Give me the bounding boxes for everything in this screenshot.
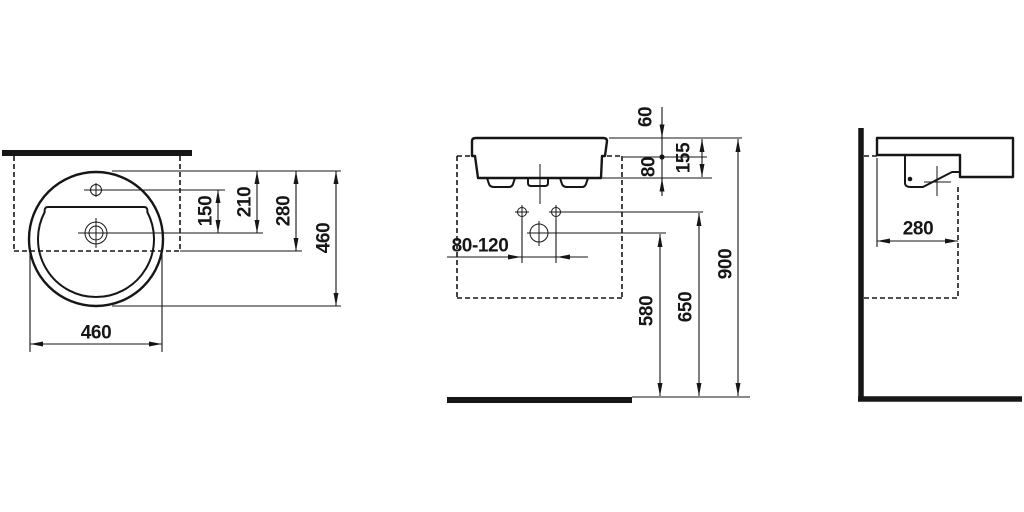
dim-label-900: 900 <box>716 249 737 280</box>
front-view: 60 80 155 580 650 900 80-120 <box>447 107 750 400</box>
drain-centerline-side <box>924 166 951 196</box>
washbasin-dimension-drawing: 150 210 280 460 460 <box>0 0 1024 512</box>
dim-label-80: 80 <box>639 157 660 177</box>
floor-line-front <box>447 397 750 400</box>
drain-dot-side <box>908 177 913 182</box>
dim-label-155: 155 <box>674 142 695 173</box>
leader-lines <box>104 171 341 306</box>
dim-label-580: 580 <box>637 296 658 327</box>
dim-label-650: 650 <box>676 292 697 323</box>
dim-label-280-top: 280 <box>274 196 295 227</box>
dim-label-210: 210 <box>235 187 256 218</box>
drain-front <box>527 221 551 246</box>
dim-label-80-120: 80-120 <box>452 236 509 257</box>
dim-label-280-side: 280 <box>903 219 934 240</box>
dim-label-150: 150 <box>196 196 217 227</box>
basin-feet <box>487 178 588 187</box>
dim-chain-dot <box>659 154 664 159</box>
top-view: 150 210 280 460 460 <box>2 153 341 352</box>
leader-lines-front <box>550 138 742 233</box>
dim-label-60: 60 <box>636 107 657 127</box>
dim-label-460-width: 460 <box>81 323 112 344</box>
fixing-hole-right <box>549 205 563 219</box>
dim-label-460-depth: 460 <box>314 223 335 254</box>
fixing-hole-left <box>515 205 529 219</box>
technical-drawing-canvas: 150 210 280 460 460 <box>0 0 1024 512</box>
drain <box>78 218 114 248</box>
basin-side-outline <box>877 138 1013 177</box>
side-view: 280 <box>858 128 1022 401</box>
